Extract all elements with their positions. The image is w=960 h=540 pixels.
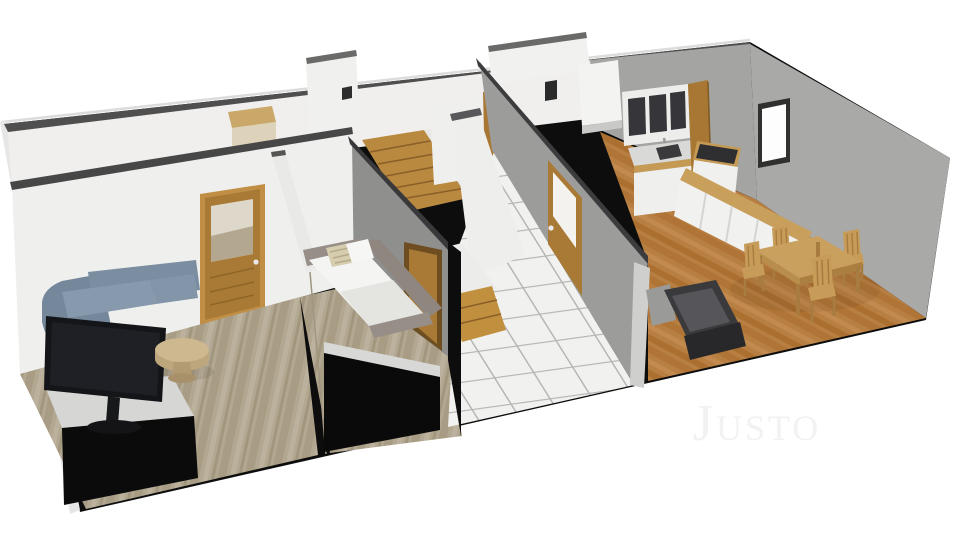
upper-cabinet-pane-3 — [670, 91, 686, 130]
dark-door-opening — [545, 80, 557, 101]
floorplan-render-page: Justo — [0, 0, 960, 540]
back-door-slot — [342, 86, 352, 100]
tv-stand-neck — [106, 396, 120, 424]
window-pane — [762, 104, 786, 162]
justo-watermark: Justo — [693, 395, 822, 452]
living-door-handle — [253, 259, 258, 264]
coffee-table-base — [168, 373, 196, 383]
floorplan-3d-render: Justo — [0, 0, 960, 540]
fridge-cabinet — [578, 60, 622, 126]
upper-cabinet-pane-2 — [649, 94, 667, 133]
upper-cabinet-pane-1 — [628, 97, 646, 136]
hall-kitchen-door-handle — [548, 225, 553, 230]
tv-stand-base — [87, 420, 141, 434]
tv-screen-inner — [50, 322, 160, 396]
coffee-table-top — [155, 338, 209, 362]
